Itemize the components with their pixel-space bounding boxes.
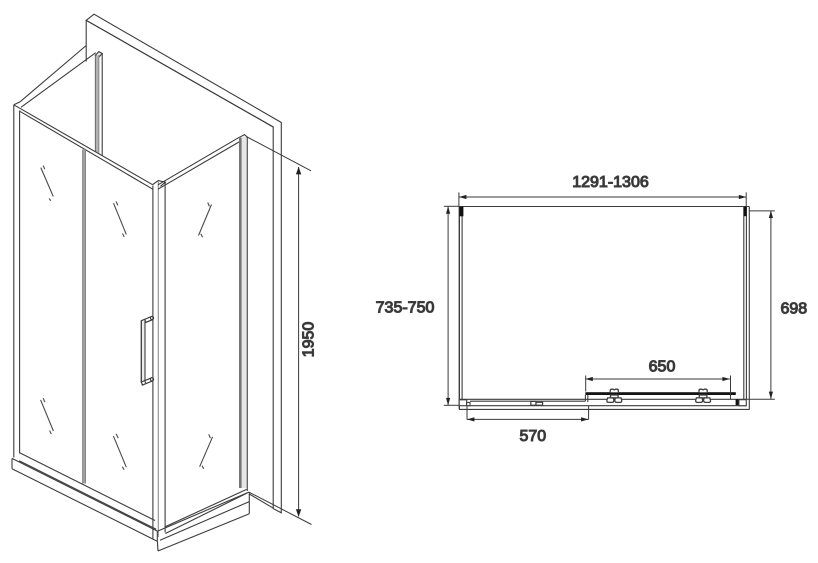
svg-text:698: 698 xyxy=(780,300,807,317)
svg-text:650: 650 xyxy=(649,359,676,376)
svg-text:1291-1306: 1291-1306 xyxy=(572,174,649,191)
svg-text:570: 570 xyxy=(519,428,546,445)
svg-text:1950: 1950 xyxy=(301,322,318,358)
svg-text:735-750: 735-750 xyxy=(376,300,435,317)
